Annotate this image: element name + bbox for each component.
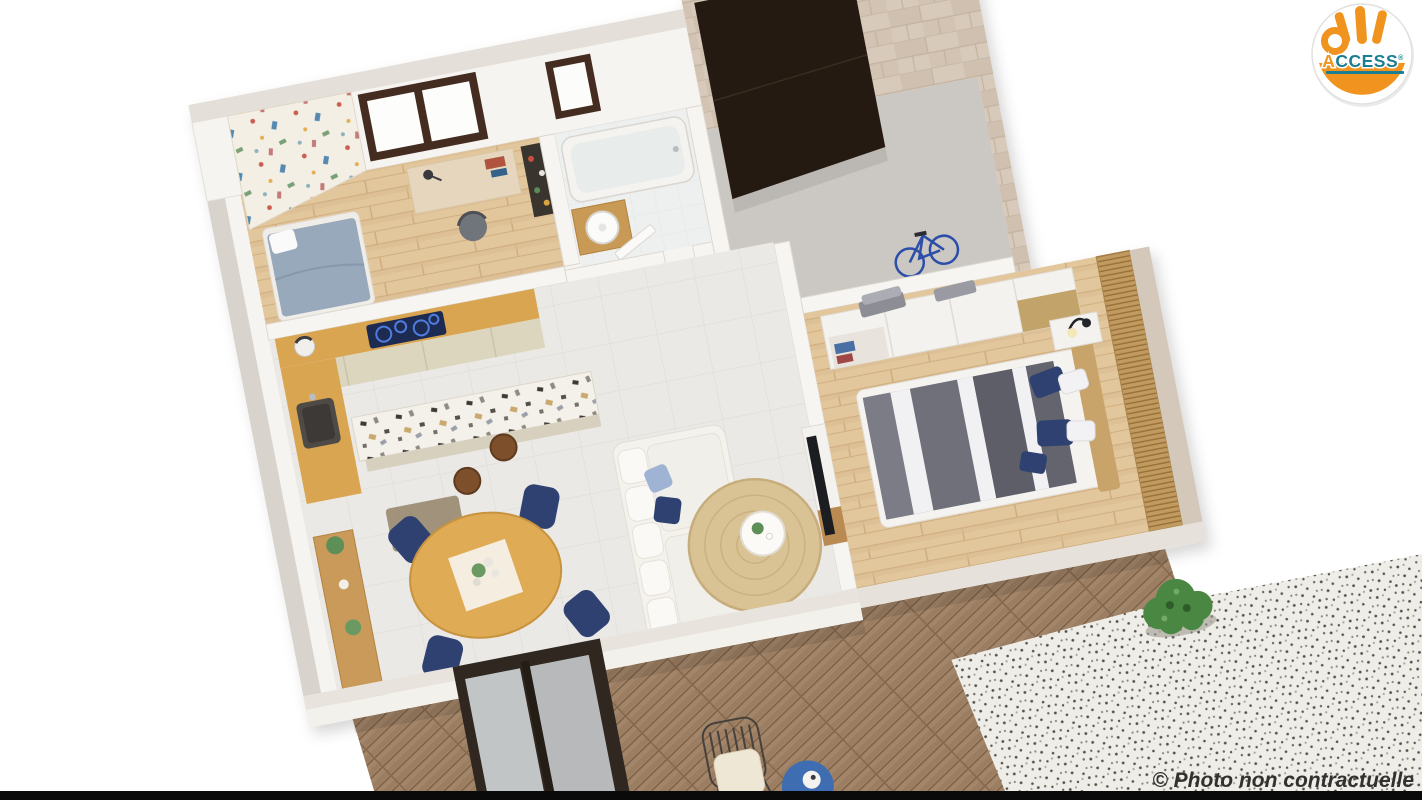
logo-brand-text: ACCESS® [1322, 51, 1404, 71]
logo-brand-rest: CCESS [1335, 51, 1398, 71]
bike-seat [915, 233, 927, 235]
logo-registered-mark: ® [1398, 54, 1404, 62]
logo-brand-initial: A [1322, 51, 1335, 71]
bottom-bar [0, 791, 1422, 800]
logo-underline [1326, 71, 1404, 74]
single-bed [262, 211, 376, 322]
logo-badge: ACCESS® [1312, 4, 1414, 107]
floor-plan-render: ACCESS® © Photo non contractuelle [0, 0, 1422, 800]
watermark-text: © Photo non contractuelle [1152, 769, 1414, 792]
